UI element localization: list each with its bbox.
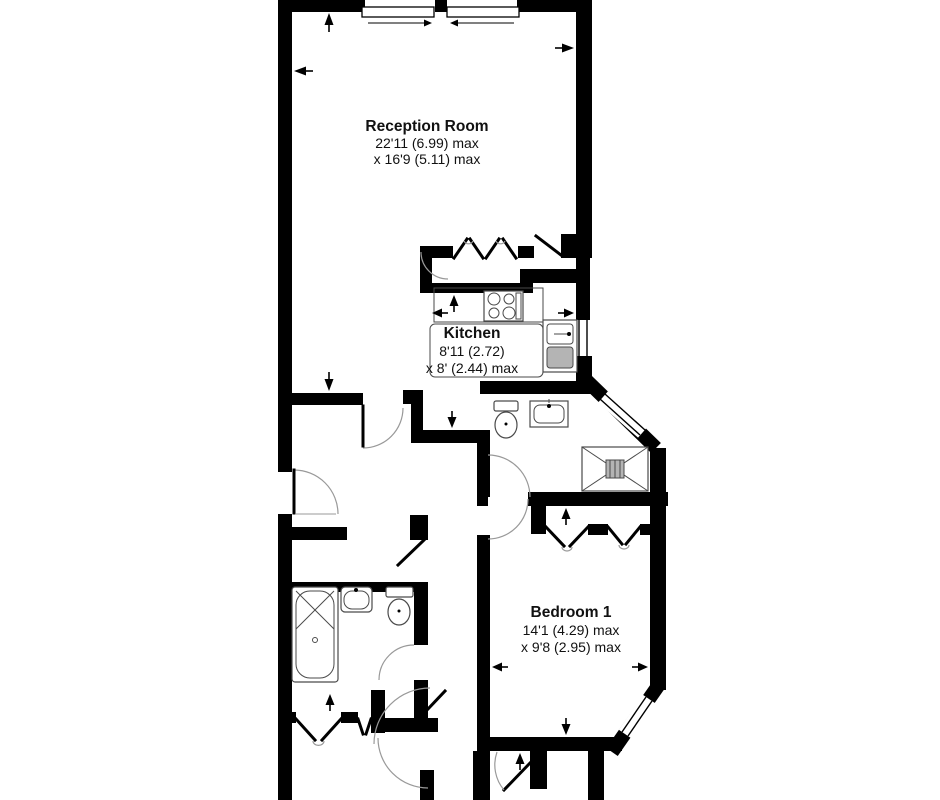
floorplan-canvas: Reception Room 22'11 (6.99) max x 16'9 (… <box>0 0 940 800</box>
lower-room-door <box>495 752 531 790</box>
bedroom-door <box>488 455 530 539</box>
shower-tray <box>582 447 648 491</box>
reception-door <box>363 406 403 448</box>
bedroom1-label-group: Bedroom 1 14'1 (4.29) max x 9'8 (2.95) m… <box>521 604 621 655</box>
french-doors <box>454 239 516 258</box>
kitchen-dim1: 8'11 (2.72) <box>439 343 504 359</box>
kitchen-window <box>579 320 587 356</box>
shower-room-toilet <box>494 401 518 438</box>
entrance-door <box>294 470 338 514</box>
shower-room-basin <box>530 399 568 427</box>
kitchen-label-group: Kitchen 8'11 (2.72) x 8' (2.44) max <box>426 325 518 376</box>
floorplan-page: Reception Room 22'11 (6.99) max x 16'9 (… <box>0 0 940 800</box>
reception-room-dim1: 22'11 (6.99) max <box>375 135 479 151</box>
lower-left-bifold-doors <box>296 719 371 745</box>
shower-room-bay-window <box>584 378 656 448</box>
kitchen-dim2: x 8' (2.44) max <box>426 360 518 376</box>
reception-kitchen-door <box>536 236 561 255</box>
reception-room-dim2: x 16'9 (5.11) max <box>374 151 481 167</box>
bathtub <box>292 587 338 682</box>
bedroom1-dim2: x 9'8 (2.95) max <box>521 639 621 655</box>
reception-room-label-group: Reception Room 22'11 (6.99) max x 16'9 (… <box>365 118 488 167</box>
reception-room-label: Reception Room <box>365 118 488 135</box>
bathroom-basin <box>341 587 372 612</box>
bathroom-door <box>379 645 414 680</box>
sliding-window-right <box>447 7 519 27</box>
bedroom-bay-window <box>612 686 658 752</box>
bedroom1-label: Bedroom 1 <box>531 604 612 621</box>
lobby-door <box>398 540 424 565</box>
sliding-window-left <box>362 7 434 27</box>
kitchen-sink-and-drainer <box>543 320 577 372</box>
bathroom-toilet <box>386 587 413 625</box>
bedroom1-dim1: 14'1 (4.29) max <box>523 622 620 638</box>
kitchen-label: Kitchen <box>444 325 501 342</box>
kitchen-hob <box>484 291 523 321</box>
